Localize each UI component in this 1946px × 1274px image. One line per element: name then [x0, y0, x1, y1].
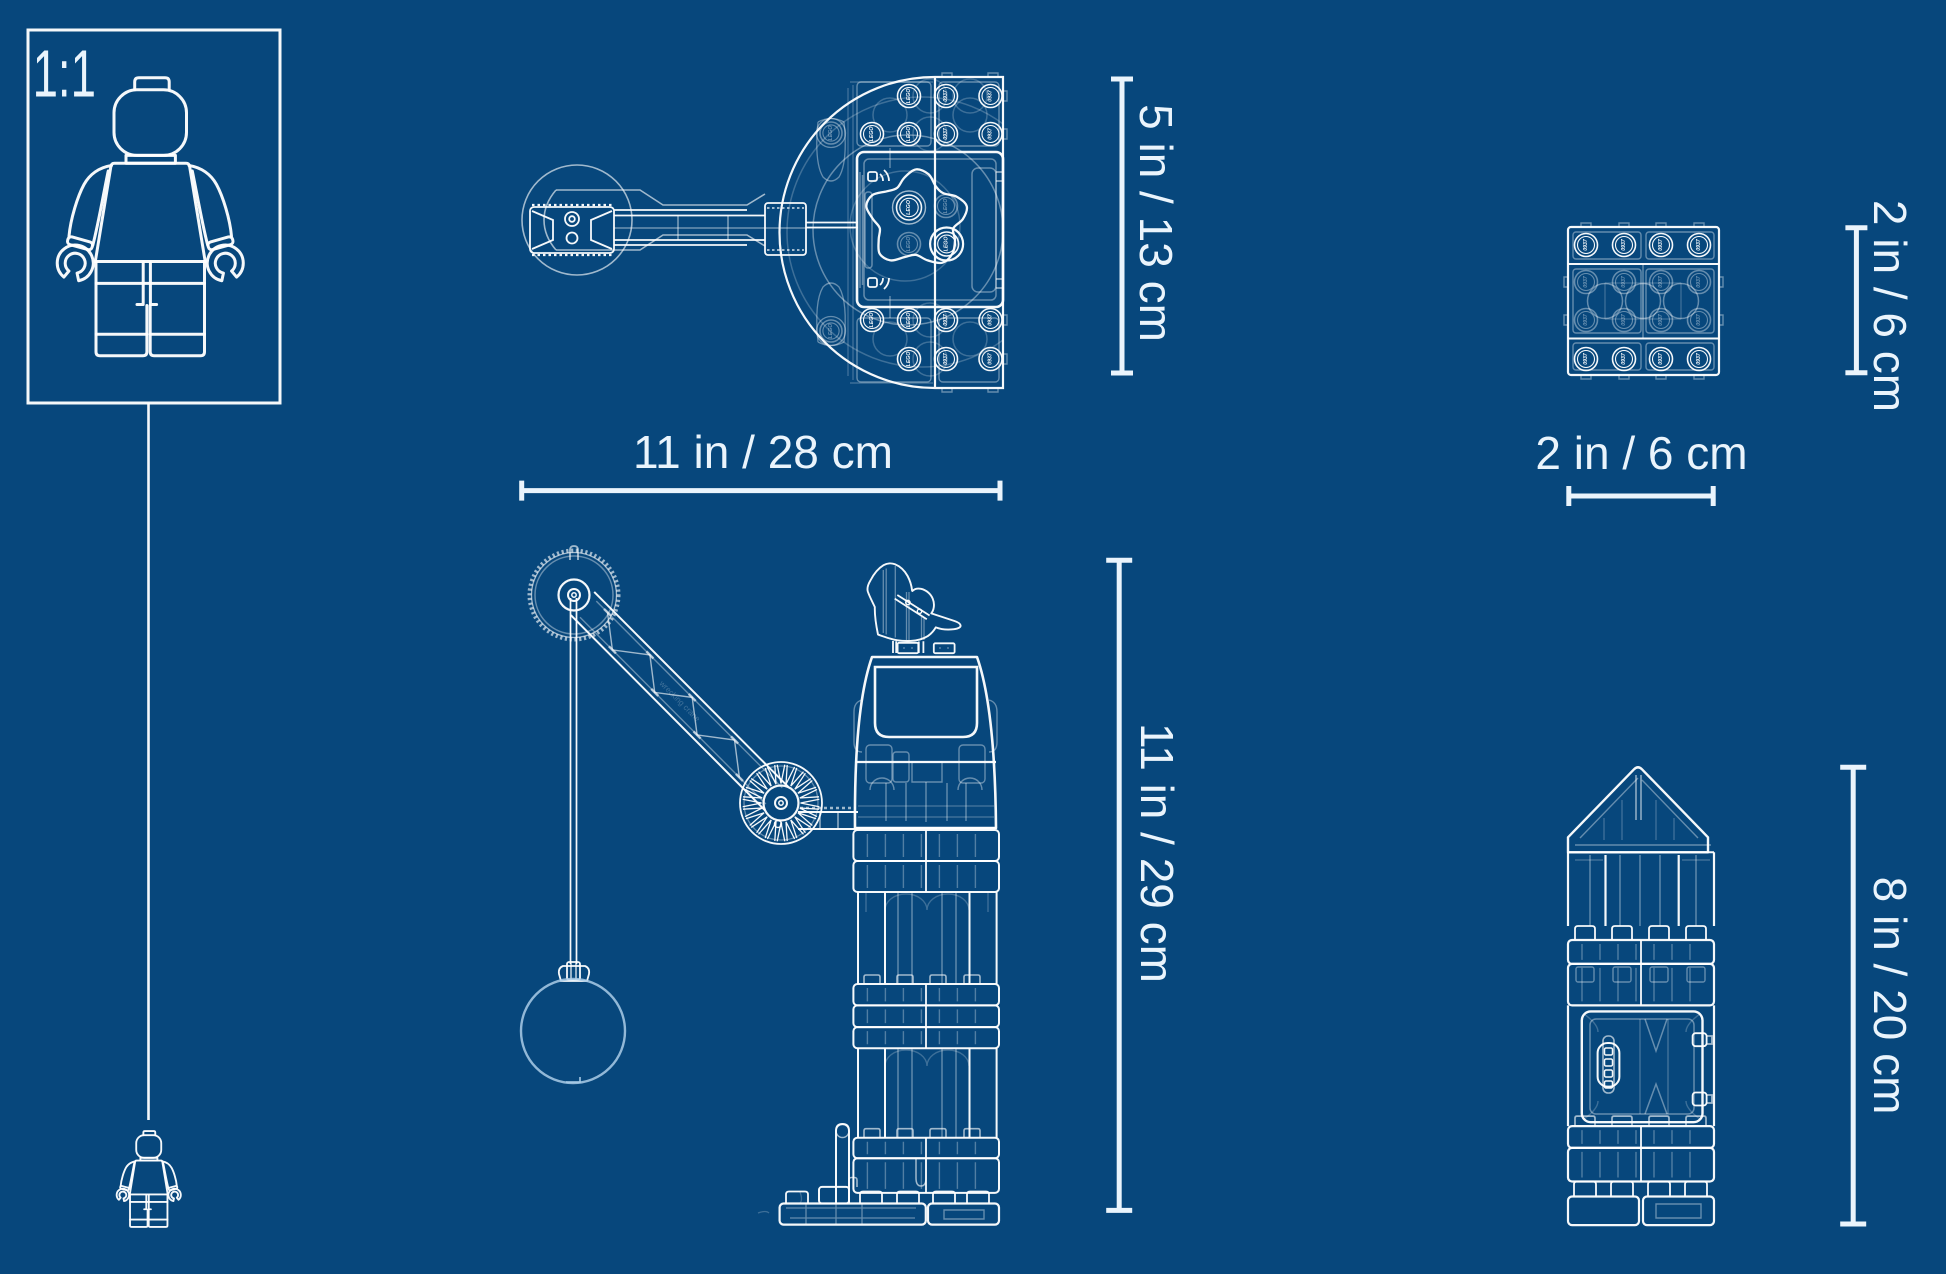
svg-text:LEGO: LEGO [828, 126, 834, 141]
svg-text:0937: 0937 [1696, 275, 1702, 288]
svg-text:0937: 0937 [1658, 313, 1664, 326]
svg-text:1:1: 1:1 [33, 37, 96, 112]
svg-text:11 in / 29 cm: 11 in / 29 cm [1131, 723, 1183, 983]
svg-text:0937: 0937 [1696, 313, 1702, 326]
svg-text:LEGO: LEGO [906, 89, 912, 104]
svg-text:LEGO: LEGO [869, 313, 875, 328]
svg-text:0937: 0937 [1696, 238, 1702, 251]
svg-text:0937: 0937 [1583, 238, 1589, 251]
svg-text:0937: 0937 [1621, 352, 1627, 365]
svg-text:0937: 0937 [1621, 238, 1627, 251]
svg-text:LEGO: LEGO [906, 352, 912, 367]
svg-text:LEGO: LEGO [906, 200, 912, 215]
svg-text:0937: 0937 [1583, 352, 1589, 365]
svg-text:0937: 0937 [1658, 238, 1664, 251]
svg-text:LEGO: LEGO [943, 199, 949, 214]
svg-text:0937: 0937 [988, 89, 994, 102]
svg-text:2 in / 6 cm: 2 in / 6 cm [1535, 427, 1747, 479]
svg-text:0937: 0937 [988, 313, 994, 326]
svg-text:LEGO: LEGO [869, 127, 875, 142]
svg-text:LEGO: LEGO [944, 237, 950, 252]
svg-text:0937: 0937 [1696, 352, 1702, 365]
svg-text:0937: 0937 [1583, 313, 1589, 326]
svg-text:0937: 0937 [988, 127, 994, 140]
svg-text:5 in / 13 cm: 5 in / 13 cm [1130, 104, 1182, 342]
svg-text:2 in / 6 cm: 2 in / 6 cm [1864, 200, 1916, 412]
svg-text:0937: 0937 [1658, 352, 1664, 365]
svg-text:LEGO: LEGO [906, 237, 912, 252]
svg-text:LEGO: LEGO [906, 127, 912, 142]
svg-text:0937: 0937 [988, 352, 994, 365]
svg-text:LEGO: LEGO [828, 324, 834, 339]
svg-text:0937: 0937 [1658, 275, 1664, 288]
svg-text:LEGO: LEGO [906, 313, 912, 328]
svg-text:11 in / 28 cm: 11 in / 28 cm [633, 426, 893, 478]
svg-text:0937: 0937 [1583, 275, 1589, 288]
svg-text:8 in / 20 cm: 8 in / 20 cm [1864, 877, 1916, 1115]
svg-text:0937: 0937 [1621, 313, 1627, 326]
svg-text:0937: 0937 [1621, 275, 1627, 288]
